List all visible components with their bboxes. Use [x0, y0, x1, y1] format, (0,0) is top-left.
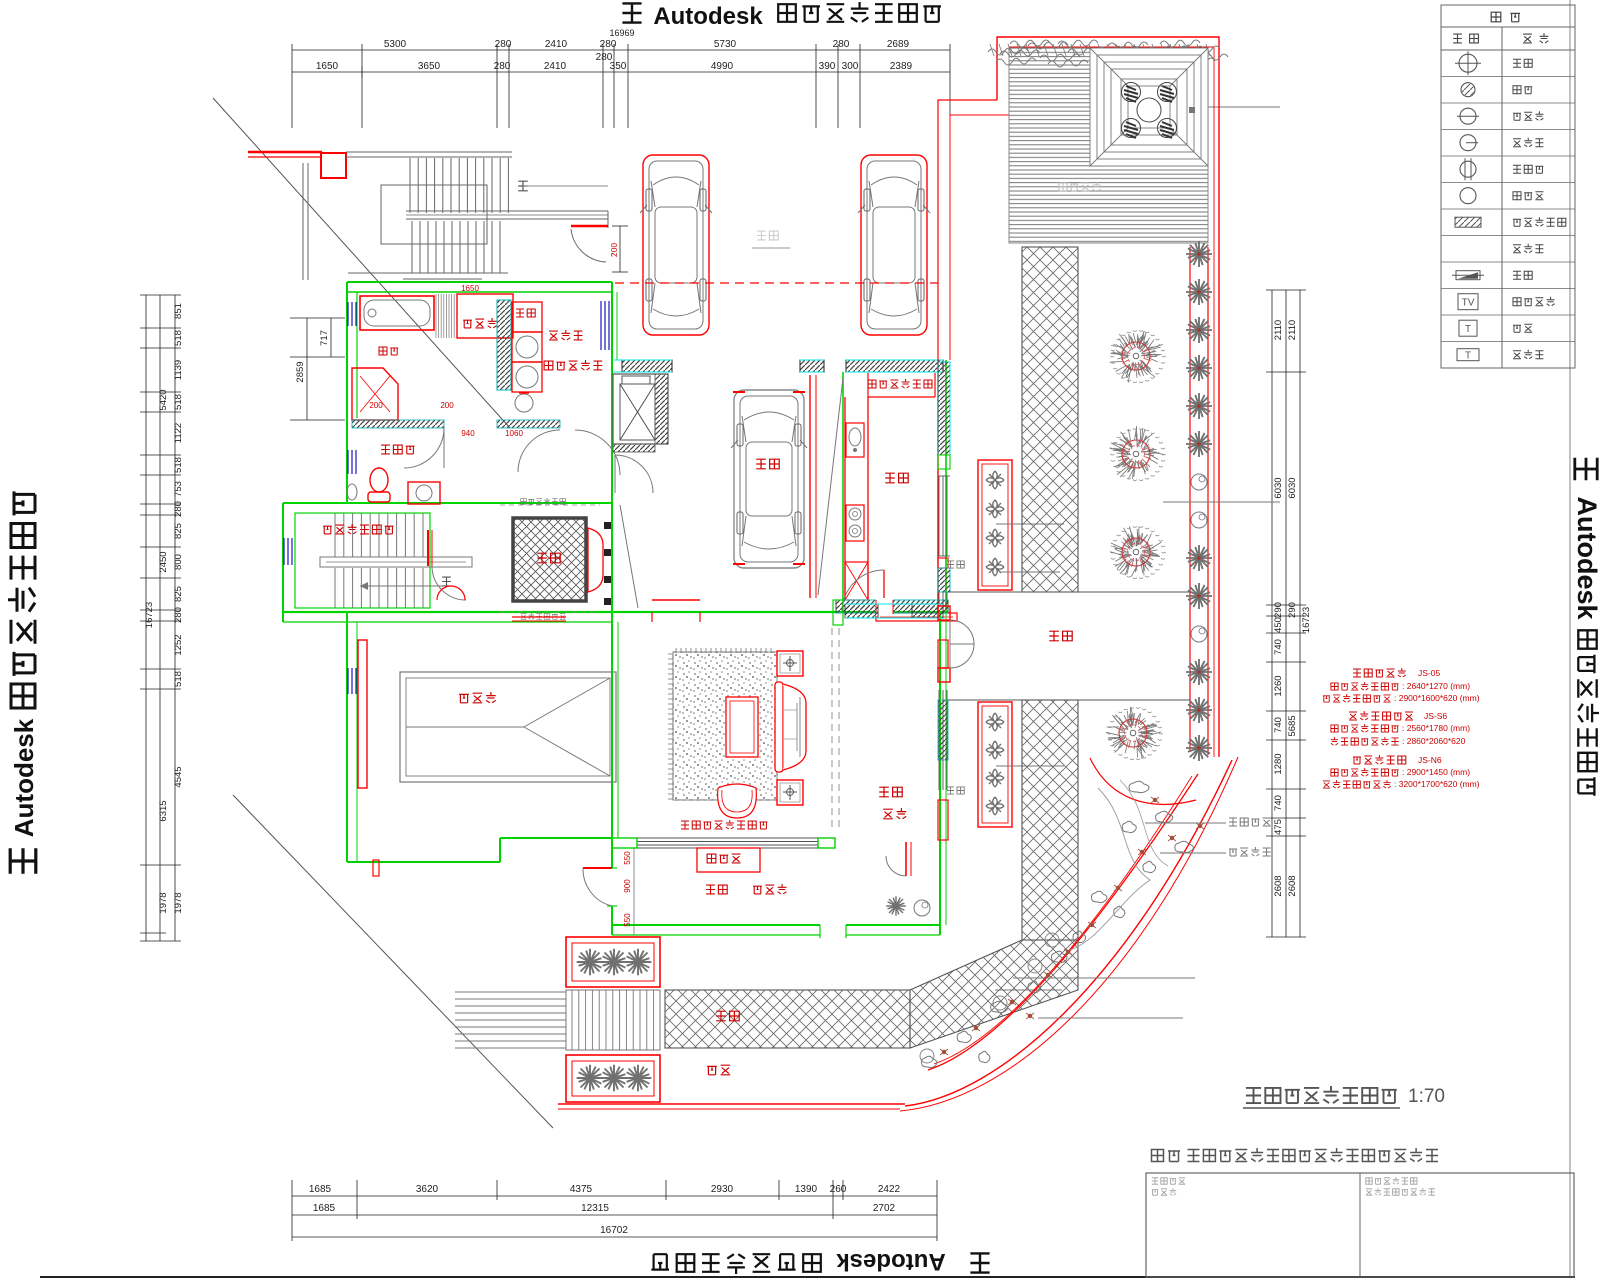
svg-text:4545: 4545	[173, 766, 184, 787]
svg-text:Autodesk: Autodesk	[836, 1248, 946, 1275]
svg-text:900: 900	[623, 879, 632, 893]
svg-text:200: 200	[440, 401, 454, 410]
svg-text:5300: 5300	[384, 39, 407, 50]
svg-text:: 2560*1780 (mm): : 2560*1780 (mm)	[1402, 723, 1470, 733]
svg-text:: 2640*1270 (mm): : 2640*1270 (mm)	[1402, 681, 1470, 691]
svg-text:1685: 1685	[313, 1203, 336, 1214]
svg-text:280: 280	[173, 607, 184, 623]
svg-text:740: 740	[1273, 717, 1284, 733]
svg-text:280: 280	[494, 61, 511, 72]
svg-text:1390: 1390	[795, 1184, 818, 1195]
svg-text:740: 740	[1273, 639, 1284, 655]
svg-text:2422: 2422	[878, 1184, 901, 1195]
svg-text:16969: 16969	[609, 28, 634, 38]
svg-text:280: 280	[833, 39, 850, 50]
svg-text:300: 300	[842, 61, 859, 72]
svg-text:1:70: 1:70	[1408, 1086, 1445, 1107]
svg-text:1252: 1252	[173, 634, 184, 655]
svg-text:1139: 1139	[173, 360, 184, 380]
svg-text:518: 518	[173, 330, 184, 346]
svg-text:1650: 1650	[461, 284, 479, 293]
svg-text:4990: 4990	[711, 61, 734, 72]
svg-text:1260: 1260	[1273, 675, 1284, 696]
svg-text:Autodesk: Autodesk	[653, 3, 763, 30]
svg-text:2608: 2608	[1273, 875, 1284, 896]
svg-text:290: 290	[1287, 602, 1298, 618]
svg-text:16702: 16702	[600, 1225, 628, 1236]
svg-text:2410: 2410	[544, 61, 567, 72]
svg-text:940: 940	[461, 429, 475, 438]
svg-text:2410: 2410	[545, 39, 568, 50]
svg-text:4375: 4375	[570, 1184, 593, 1195]
svg-text:T: T	[1465, 324, 1471, 335]
svg-text:16723: 16723	[1301, 607, 1312, 633]
svg-text:825: 825	[173, 523, 184, 539]
svg-text:740: 740	[1273, 795, 1284, 811]
svg-text:: 2900*1450 (mm): : 2900*1450 (mm)	[1402, 767, 1470, 777]
svg-text:1280: 1280	[1273, 753, 1284, 774]
svg-text:1978: 1978	[158, 892, 169, 913]
svg-text:JS-05: JS-05	[1418, 668, 1440, 678]
svg-text:: 3200*1700*620 (mm): : 3200*1700*620 (mm)	[1394, 779, 1480, 789]
svg-text:260: 260	[830, 1184, 847, 1195]
svg-text:5420: 5420	[158, 389, 169, 410]
svg-text:3620: 3620	[416, 1184, 439, 1195]
svg-text:6030: 6030	[1287, 477, 1298, 498]
svg-text:TV: TV	[1462, 298, 1475, 309]
svg-text:1122: 1122	[173, 423, 184, 443]
svg-text:2389: 2389	[890, 61, 913, 72]
svg-text:16723: 16723	[144, 602, 155, 628]
svg-text:2859: 2859	[295, 361, 306, 382]
svg-text:350: 350	[610, 61, 627, 72]
svg-text:2110: 2110	[1273, 320, 1284, 340]
svg-text:2930: 2930	[711, 1184, 734, 1195]
svg-text:290: 290	[1273, 602, 1284, 618]
svg-text:12315: 12315	[581, 1203, 609, 1214]
svg-text:800: 800	[173, 554, 184, 570]
svg-text:5730: 5730	[714, 39, 737, 50]
svg-text:5685: 5685	[1287, 715, 1298, 736]
svg-text:JS-S6: JS-S6	[1424, 711, 1447, 721]
svg-text:2689: 2689	[887, 39, 910, 50]
svg-text:753: 753	[173, 481, 184, 497]
svg-text:6030: 6030	[1273, 477, 1284, 498]
svg-text:2702: 2702	[873, 1203, 896, 1214]
svg-text:6315: 6315	[158, 800, 169, 821]
svg-text:825: 825	[173, 586, 184, 602]
svg-text:Autodesk: Autodesk	[9, 718, 39, 837]
svg-text:1650: 1650	[316, 61, 339, 72]
svg-text:550: 550	[623, 913, 632, 927]
svg-text:200: 200	[609, 243, 619, 257]
svg-text:1685: 1685	[309, 1184, 332, 1195]
svg-text:2608: 2608	[1287, 875, 1298, 896]
svg-text:390: 390	[819, 61, 836, 72]
svg-text:3650: 3650	[418, 61, 441, 72]
svg-text:200: 200	[369, 401, 383, 410]
svg-text:2110: 2110	[1287, 320, 1298, 340]
svg-text:518: 518	[173, 671, 184, 687]
svg-text:475: 475	[1273, 819, 1284, 835]
svg-text:: 2900*1600*620 (mm): : 2900*1600*620 (mm)	[1394, 693, 1480, 703]
svg-text:518: 518	[173, 457, 184, 473]
svg-text:717: 717	[319, 330, 330, 346]
svg-text:2450: 2450	[158, 551, 169, 572]
svg-text:JS-N6: JS-N6	[1418, 755, 1442, 765]
svg-text:280: 280	[173, 501, 184, 517]
svg-text:T: T	[1465, 351, 1471, 362]
svg-text:1060: 1060	[505, 429, 523, 438]
svg-text:550: 550	[623, 851, 632, 865]
svg-text:: 2860*2060*620: : 2860*2060*620	[1402, 736, 1466, 746]
svg-text:851: 851	[173, 303, 184, 319]
svg-text:518: 518	[173, 394, 184, 410]
svg-text:Autodesk: Autodesk	[1572, 496, 1600, 620]
svg-text:1978: 1978	[173, 892, 184, 913]
svg-text:450: 450	[1273, 617, 1284, 633]
